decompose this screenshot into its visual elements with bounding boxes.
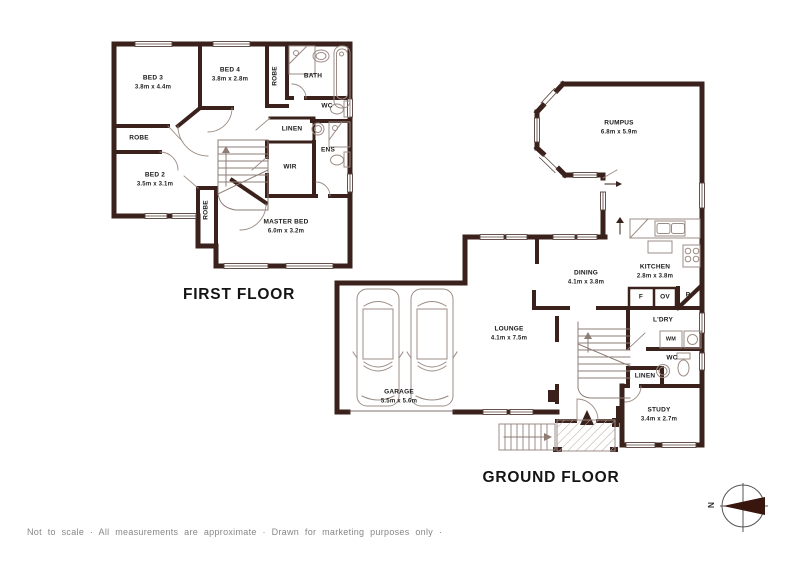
ff-doors [160, 84, 330, 230]
compass [720, 483, 768, 532]
room-name: F [639, 294, 643, 303]
room-name: BED 4 [212, 67, 248, 76]
room-label-study: STUDY 3.4m x 2.7m [641, 407, 677, 424]
room-name: LOUNGE [491, 326, 527, 335]
room-label-wm: WM [666, 336, 676, 343]
room-label-master-bed: MASTER BED 6.0m x 3.2m [264, 219, 309, 236]
disclaimer-text: Not to scale · All measurements are appr… [27, 527, 442, 537]
room-name: ENS [321, 147, 335, 156]
room-name: KITCHEN [637, 264, 673, 273]
room-label-dining: DINING 4.1m x 3.8m [568, 270, 604, 287]
gf-doors [577, 170, 645, 421]
room-name: OV [660, 294, 670, 303]
room-label-linen-ff: LINEN [282, 126, 303, 135]
room-name: RUMPUS [601, 120, 637, 129]
room-label-kitchen: KITCHEN 2.8m x 3.8m [637, 264, 673, 281]
room-label-wc-ff: WC [321, 103, 332, 112]
shower-icon [289, 46, 315, 74]
room-name: BED 2 [137, 172, 173, 181]
room-name: BED 3 [135, 75, 171, 84]
room-name: ROBE [129, 135, 149, 144]
wc-toilet-icon [677, 353, 690, 376]
room-label-ens: ENS [321, 147, 335, 156]
room-label-wir: WIR [283, 164, 296, 173]
room-dims: 3.4m x 2.7m [641, 415, 677, 423]
room-name: WM [666, 336, 676, 343]
ff-fixtures [289, 46, 350, 167]
room-dims: 3.5m x 3.1m [137, 180, 173, 188]
floorplan-page: BED 3 3.8m x 4.4m BED 4 3.8m x 2.8m ROBE… [0, 0, 800, 565]
room-name: LINEN [282, 126, 303, 135]
first-floor-title: FIRST FLOOR [183, 286, 295, 304]
room-label-garage: GARAGE 5.5m x 5.6m [381, 389, 417, 406]
room-name: L'DRY [653, 317, 673, 326]
north-arrow-icon [723, 497, 765, 515]
room-label-ldry: L'DRY [653, 317, 673, 326]
room-name: P [686, 292, 691, 301]
room-label-oven: OV [660, 294, 670, 303]
room-name: ROBE [272, 66, 281, 86]
room-name: GARAGE [381, 389, 417, 398]
room-dims: 6.8m x 5.9m [601, 128, 637, 136]
room-name: MASTER BED [264, 219, 309, 228]
room-label-linen-gf: LINEN [635, 373, 656, 382]
room-name: WC [666, 355, 677, 364]
room-name: BATH [304, 73, 322, 82]
north-label: N [706, 498, 720, 512]
room-name: STUDY [641, 407, 677, 416]
cooktop-icon [683, 245, 700, 267]
room-dims: 3.8m x 2.8m [212, 75, 248, 83]
room-name: LINEN [635, 373, 656, 382]
entry-porch [557, 420, 615, 451]
room-label-bed2: BED 2 3.5m x 3.1m [137, 172, 173, 189]
room-dims: 4.1m x 3.8m [568, 278, 604, 286]
room-name: ROBE [203, 200, 212, 220]
laundry-tub-icon [684, 331, 701, 348]
room-dims: 2.8m x 3.8m [637, 272, 673, 280]
ground-floor-title: GROUND FLOOR [482, 469, 619, 487]
room-name: WC [321, 103, 332, 112]
room-label-bed3: BED 3 3.8m x 4.4m [135, 75, 171, 92]
room-label-robe-bed2: ROBE [203, 200, 212, 220]
kitchen-sink-icon [655, 221, 685, 236]
room-dims: 6.0m x 3.2m [264, 227, 309, 235]
room-label-wc-gf: WC [666, 355, 677, 364]
room-dims: 3.8m x 4.4m [135, 83, 171, 91]
room-name: DINING [568, 270, 604, 279]
room-dims: 5.5m x 5.6m [381, 397, 417, 405]
gf-kitchen-counter [630, 219, 700, 267]
room-label-rumpus: RUMPUS 6.8m x 5.9m [601, 120, 637, 137]
room-label-bed4: BED 4 3.8m x 2.8m [212, 67, 248, 84]
room-name: WIR [283, 164, 296, 173]
room-label-lounge: LOUNGE 4.1m x 7.5m [491, 326, 527, 343]
room-label-robe-bed3: ROBE [129, 135, 149, 144]
room-dims: 4.1m x 7.5m [491, 334, 527, 342]
room-label-fridge: F [639, 294, 643, 303]
ens-shower-icon [329, 122, 350, 147]
room-label-pantry: P [686, 292, 691, 301]
entry-steps [499, 424, 555, 450]
room-label-bath: BATH [304, 73, 322, 82]
room-label-robe-bed4: ROBE [272, 66, 281, 86]
floorplan-drawing [0, 0, 800, 565]
